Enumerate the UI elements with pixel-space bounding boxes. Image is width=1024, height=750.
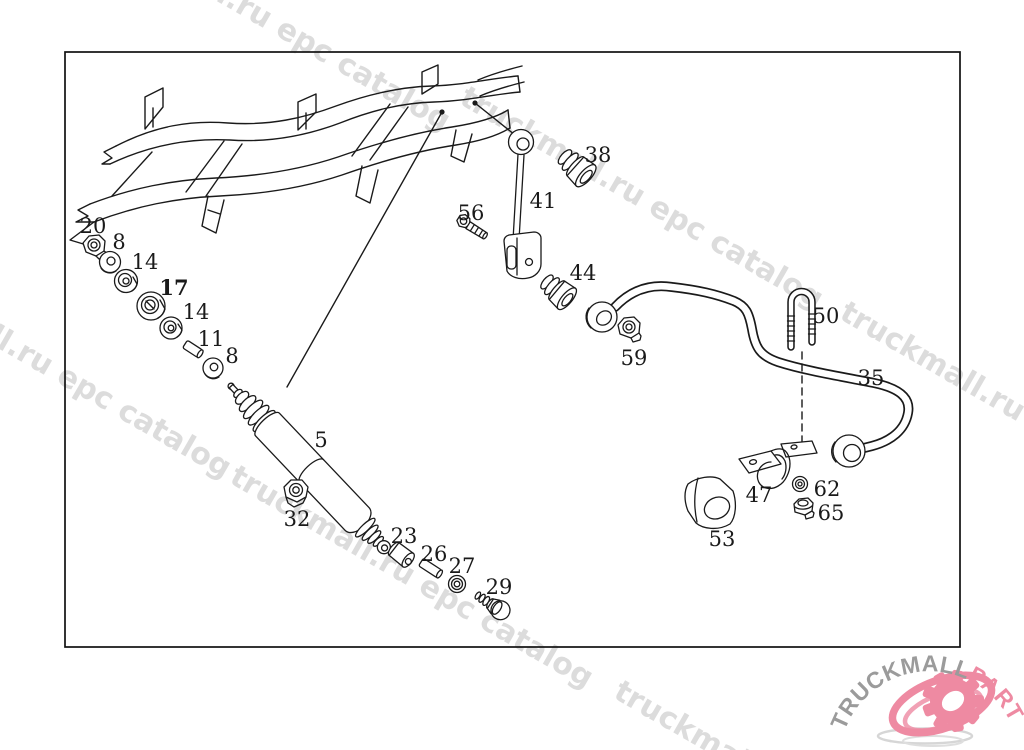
part-label-56: 56: [458, 201, 485, 225]
part-bushing-14b: [160, 317, 182, 339]
part-label-8: 8: [225, 344, 238, 368]
part-washer-62: [793, 477, 808, 492]
watermark-text: truckmall.ru epc catalog: [454, 80, 829, 317]
part-label-5: 5: [314, 428, 327, 452]
part-washer-8b: [203, 358, 223, 379]
parts-diagram: truckmall.ru epc catalog truckmall.ru ep…: [0, 0, 1024, 750]
part-label-14: 14: [132, 250, 159, 274]
part-label-26: 26: [421, 542, 448, 566]
part-label-47: 47: [746, 483, 773, 507]
leader-dot: [439, 109, 444, 114]
part-label-59: 59: [621, 346, 648, 370]
part-label-38: 38: [585, 143, 612, 167]
parts-catalog-page: truckmall.ru epc catalog truckmall.ru ep…: [0, 0, 1024, 750]
part-nut-65: [794, 498, 814, 519]
part-label-50: 50: [813, 304, 840, 328]
part-label-41: 41: [530, 189, 557, 213]
part-label-32: 32: [284, 507, 311, 531]
part-label-11: 11: [198, 327, 225, 351]
watermark-text: truckmall.ru epc catalog: [834, 295, 1024, 532]
part-label-8: 8: [112, 230, 125, 254]
chassis-frame-art: [70, 65, 524, 246]
watermark-text: truckmall.ru epc catalog: [224, 459, 599, 696]
part-label-44: 44: [570, 261, 597, 285]
part-label-20: 20: [80, 214, 107, 238]
part-label-53: 53: [709, 527, 736, 551]
part-rubber-mount-53: [685, 477, 735, 528]
part-label-65: 65: [818, 501, 845, 525]
part-label-35: 35: [858, 366, 885, 390]
part-label-14: 14: [183, 300, 210, 324]
part-washer-27: [449, 576, 466, 593]
part-label-17: 17: [159, 275, 188, 300]
part-label-29: 29: [486, 575, 513, 599]
part-washer-8: [100, 252, 121, 273]
part-label-62: 62: [814, 477, 841, 501]
part-nut-59: [618, 317, 641, 342]
leader-dot: [472, 100, 477, 105]
leader-line-shock: [287, 112, 442, 387]
part-label-23: 23: [391, 524, 418, 548]
leader-lines: [287, 100, 515, 387]
part-number-callouts: 2081417141185322326272956384144595035476…: [80, 143, 885, 599]
part-label-27: 27: [449, 554, 476, 578]
